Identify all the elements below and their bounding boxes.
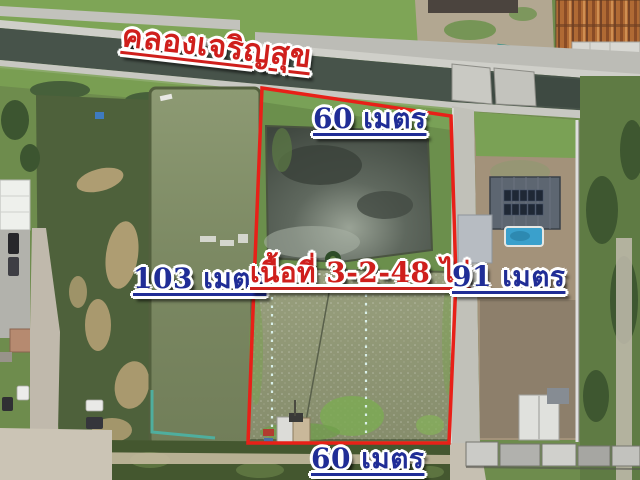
area-label: เนื้อที่ 3-2-48 ไร่ (250, 258, 471, 287)
bottom-width-label: 60 เมตร (311, 444, 424, 473)
right-length-label: 91 เมตร (452, 262, 565, 291)
aerial-photo (0, 0, 640, 480)
plot-bottom-pond (249, 268, 454, 441)
neighbor-house-roof (490, 177, 560, 229)
aerial-photo-listing: คลองเจริญสุข 60 เมตร 103 เมตร เนื้อที่ 3… (0, 0, 640, 480)
top-width-label: 60 เมตร (313, 104, 426, 133)
bottom-sheds (466, 442, 640, 469)
left-length-label: 103 เมตร (133, 264, 266, 293)
footpath (616, 238, 632, 480)
plot-top-pond (264, 126, 432, 267)
right-vegetation (580, 76, 640, 480)
